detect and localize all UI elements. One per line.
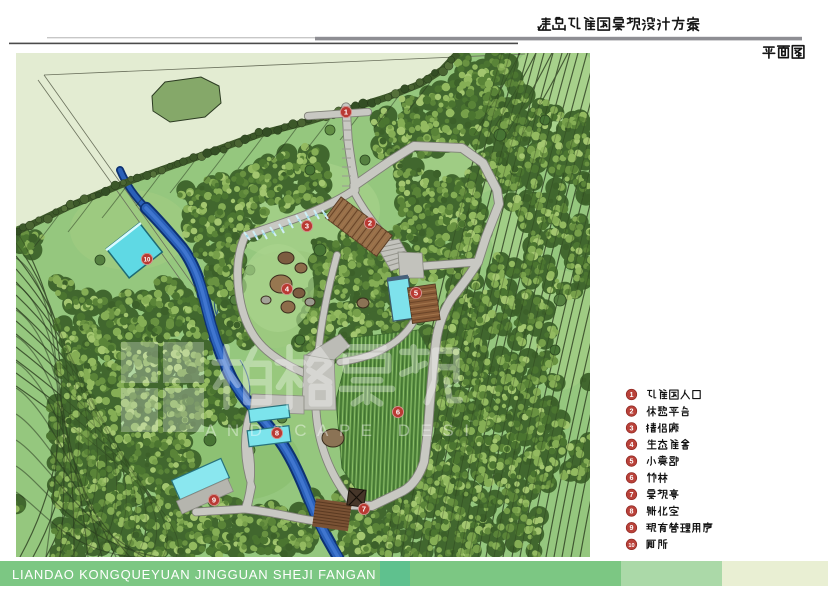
svg-text:6: 6 bbox=[630, 473, 634, 482]
svg-text:5: 5 bbox=[414, 289, 418, 298]
svg-text:8: 8 bbox=[630, 507, 634, 516]
svg-text:9: 9 bbox=[212, 496, 216, 505]
svg-text:1: 1 bbox=[630, 390, 634, 399]
svg-text:7: 7 bbox=[630, 490, 634, 499]
svg-text:3: 3 bbox=[305, 222, 309, 231]
svg-text:9: 9 bbox=[630, 523, 634, 532]
svg-text:2: 2 bbox=[368, 219, 372, 228]
svg-text:2: 2 bbox=[630, 407, 634, 416]
svg-text:ANDSCAPE DESI: ANDSCAPE DESI bbox=[205, 421, 479, 440]
svg-text:5: 5 bbox=[630, 457, 634, 466]
svg-text:7: 7 bbox=[362, 505, 366, 514]
svg-text:4: 4 bbox=[630, 440, 634, 449]
svg-text:LIANDAO KONGQUEYUAN JINGGUAN S: LIANDAO KONGQUEYUAN JINGGUAN SHEJI FANGA… bbox=[12, 567, 376, 582]
svg-text:10: 10 bbox=[628, 543, 634, 549]
svg-text:8: 8 bbox=[275, 429, 279, 438]
svg-text:10: 10 bbox=[144, 258, 151, 264]
svg-text:6: 6 bbox=[396, 408, 400, 417]
svg-text:3: 3 bbox=[630, 423, 634, 432]
svg-text:1: 1 bbox=[344, 108, 348, 117]
